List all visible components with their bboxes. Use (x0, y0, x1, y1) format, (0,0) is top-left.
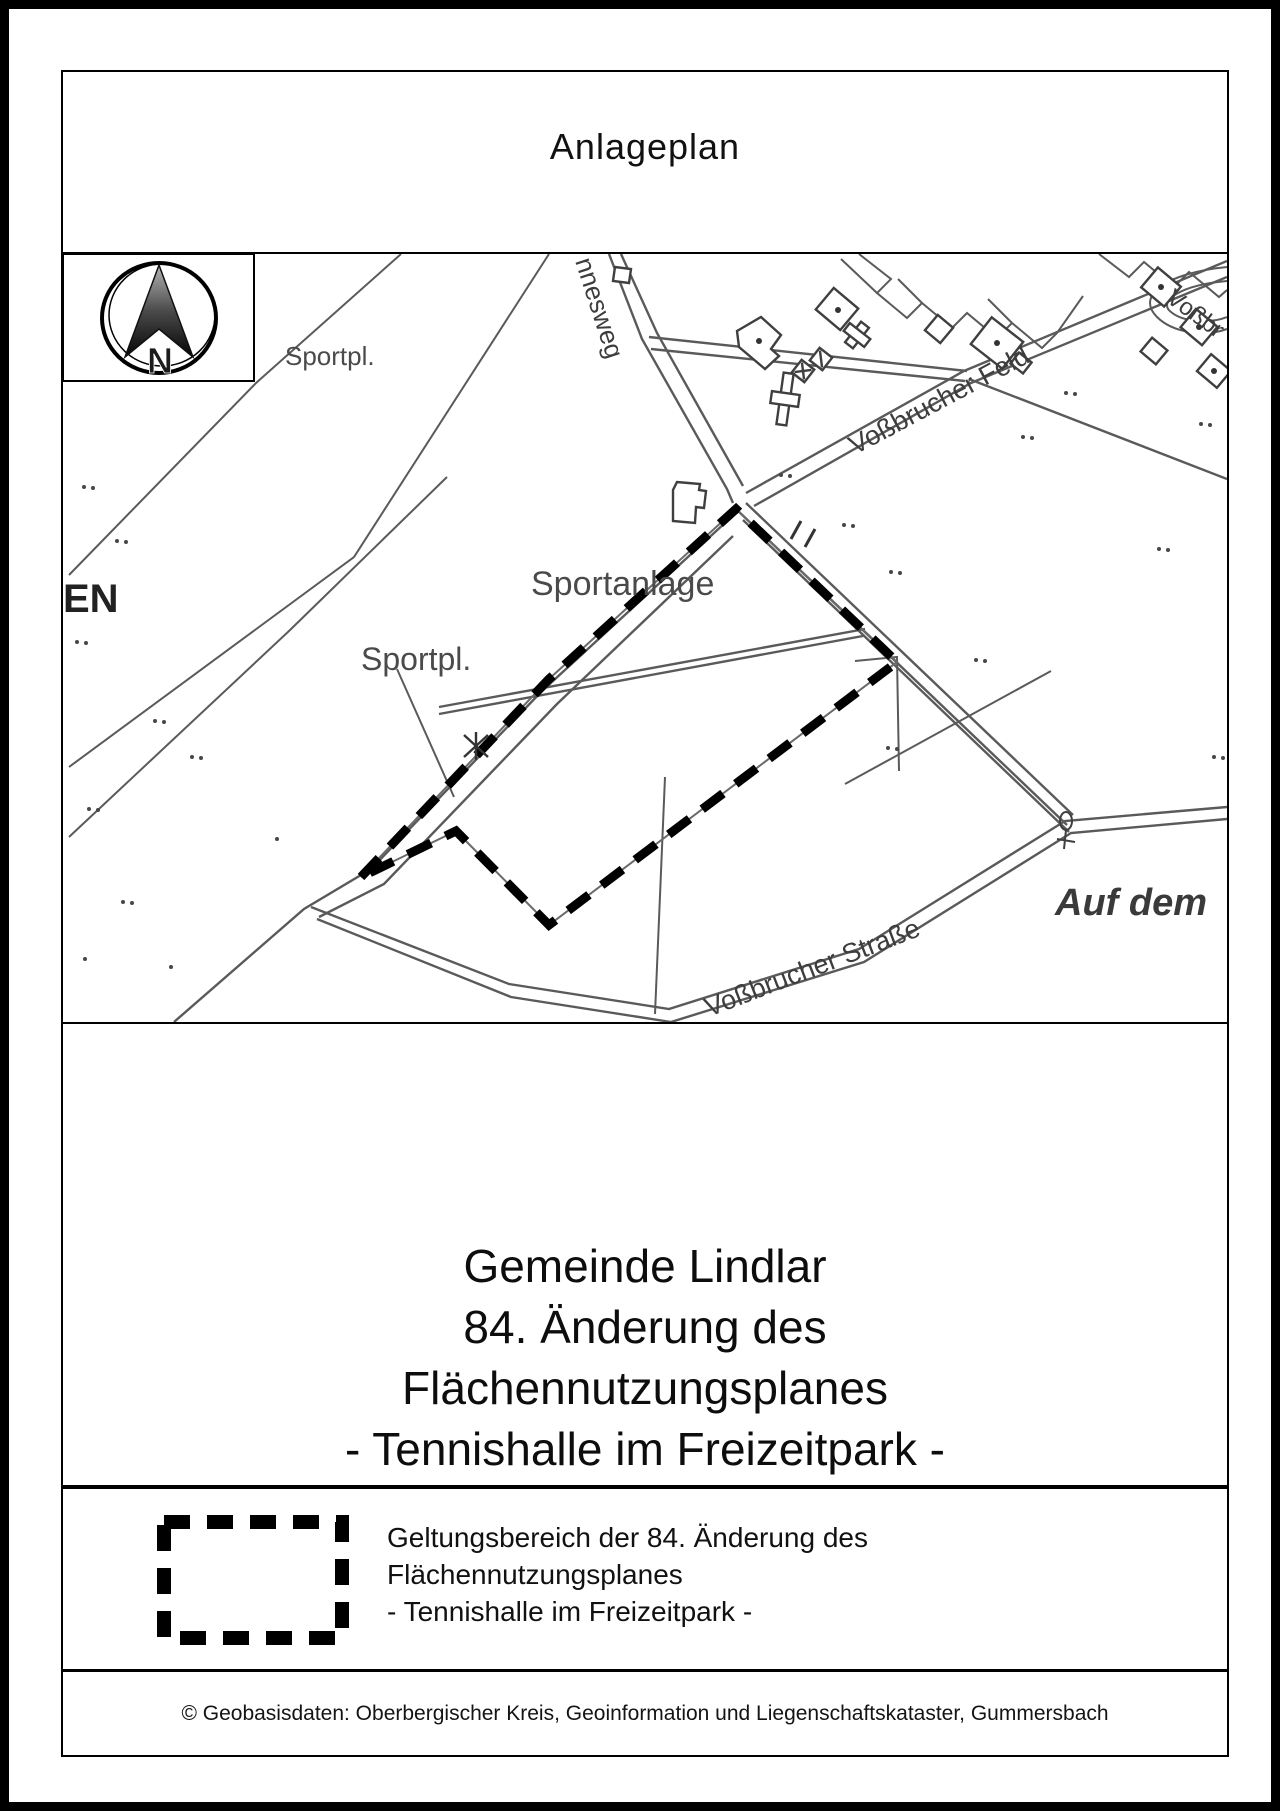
footer-credit: © Geobasisdaten: Oberbergischer Kreis, G… (63, 1702, 1227, 1726)
legend-line-1: Geltungsbereich der 84. Änderung des (387, 1519, 868, 1556)
survey-dot-pairs (75, 391, 1225, 969)
title-line-municipality: Gemeinde Lindlar (63, 1236, 1227, 1297)
label-sportplatz-lower: Sportpl. (361, 641, 471, 677)
page-title: Anlageplan (63, 126, 1227, 168)
label-sportplatz-top: Sportpl. (285, 341, 375, 371)
title-line-amendment: 84. Änderung des (63, 1297, 1227, 1358)
plan-document-page: Anlageplan (0, 0, 1280, 1811)
label-sportanlage: Sportanlage (531, 565, 714, 603)
title-line-plan: Flächennutzungsplanes (63, 1358, 1227, 1419)
mast-icon (1057, 812, 1075, 849)
label-street-vossbrucher-strasse: Voßbrucher Straße (700, 913, 924, 1022)
cadastral-map: Sportpl. Sportanlage Sportpl. Voßbrucher… (63, 254, 1227, 1022)
legend-section: Geltungsbereich der 84. Änderung des Flä… (61, 1487, 1229, 1669)
header-strip: Anlageplan (61, 70, 1229, 252)
legend-line-3: - Tennishalle im Freizeitpark - (387, 1593, 868, 1630)
title-line-project: - Tennishalle im Freizeitpark - (63, 1419, 1227, 1480)
footer-section: © Geobasisdaten: Oberbergischer Kreis, G… (61, 1669, 1229, 1757)
north-letter: N (147, 340, 173, 381)
legend-boundary-symbol (154, 1514, 354, 1649)
north-arrow: N (63, 254, 254, 381)
double-tick-icon (791, 521, 815, 547)
label-en-partial: EN (63, 577, 119, 621)
map-canvas: Sportpl. Sportanlage Sportpl. Voßbrucher… (61, 252, 1229, 1024)
title-block: Gemeinde Lindlar 84. Änderung des Fläche… (61, 1024, 1229, 1487)
legend-line-2: Flächennutzungsplanes (387, 1556, 868, 1593)
label-auf-dem: Auf dem (1054, 882, 1207, 924)
label-street-vossbrucher-feld: Voßbrucher Feld (844, 340, 1034, 460)
